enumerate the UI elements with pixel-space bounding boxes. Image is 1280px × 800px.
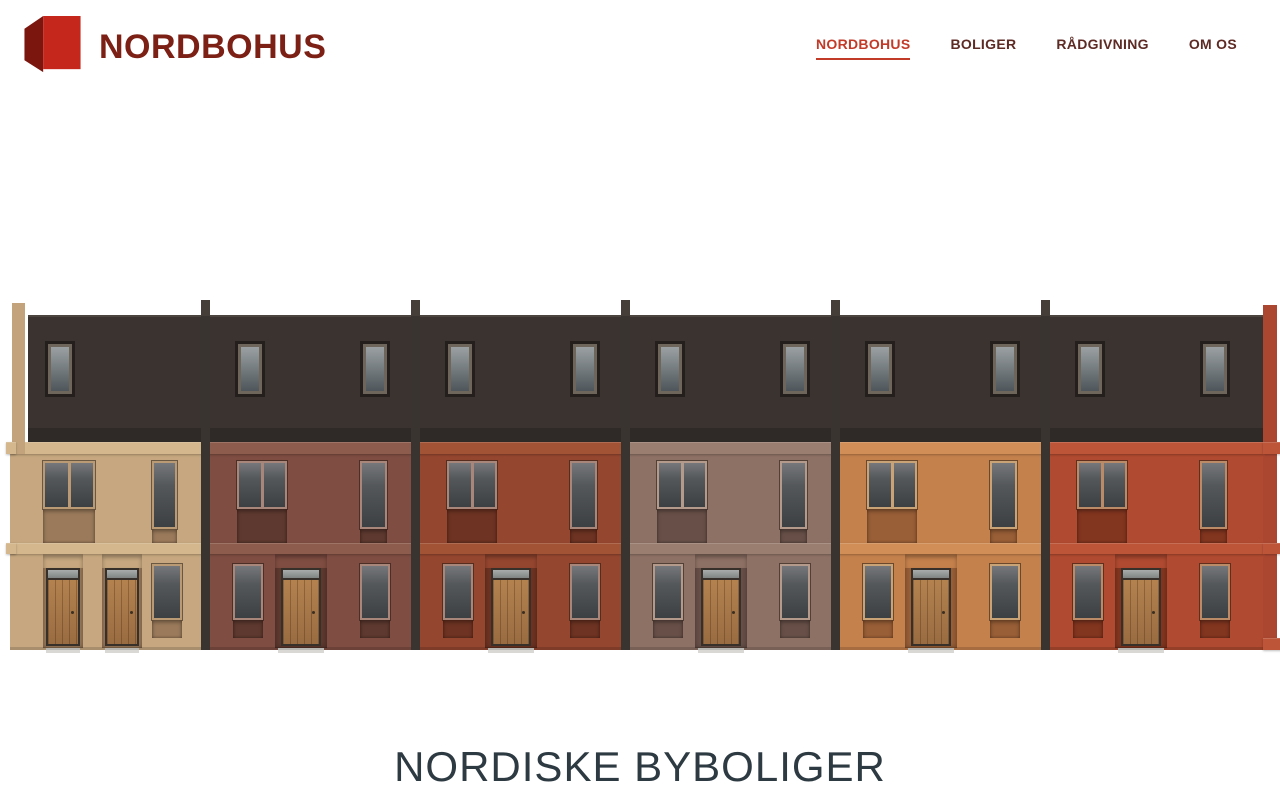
dormer-window (1075, 341, 1105, 397)
floor-band (10, 543, 205, 554)
dormer-glass (1081, 347, 1099, 391)
band-tab-left (6, 543, 16, 554)
band-tab-right (1263, 442, 1280, 454)
cornice-band (10, 442, 205, 454)
door-lintel (1115, 554, 1167, 568)
window-glass (869, 463, 891, 507)
spandrel-panel (360, 529, 387, 543)
door-frame (491, 568, 531, 646)
transom-window (283, 570, 319, 578)
spandrel-panel (990, 529, 1017, 543)
door-recess (1115, 554, 1167, 648)
ground-window (152, 564, 182, 620)
nav-item-om-os[interactable]: OM OS (1189, 36, 1237, 60)
door-recess (695, 554, 747, 648)
floor-band (625, 543, 835, 554)
front-door (913, 580, 949, 644)
upper-single-window (360, 461, 387, 529)
window-glass (1075, 566, 1101, 618)
dormer-frame (868, 344, 892, 394)
house-1-beige (10, 300, 205, 654)
site-header: NORDBOHUS NORDBOHUSBOLIGERRÅDGIVNINGOM O… (0, 0, 1280, 95)
party-wall-divider (831, 315, 840, 650)
roof-eave (28, 428, 205, 442)
spandrel-panel (570, 529, 597, 543)
roof-vent-post (201, 300, 210, 316)
roof-vent-post (1041, 300, 1050, 316)
upper-double-window (447, 461, 497, 509)
nav-item-nordbohus[interactable]: NORDBOHUS (816, 36, 910, 60)
door-recess (102, 554, 142, 648)
dormer-glass (576, 347, 594, 391)
dormer-window (865, 341, 895, 397)
cornice-band (415, 442, 625, 454)
dormer-frame (783, 344, 807, 394)
spandrel-panel (233, 620, 263, 638)
transom-window (493, 570, 529, 578)
dormer-frame (363, 344, 387, 394)
ground-window (1073, 564, 1103, 620)
window-glass (45, 463, 68, 507)
dormer-frame (658, 344, 682, 394)
band-tab-left (6, 442, 16, 454)
door-handle (312, 611, 315, 614)
window-glass (362, 566, 388, 618)
front-door (703, 580, 739, 644)
dormer-frame (1203, 344, 1227, 394)
roof-vent-post (621, 300, 630, 316)
dormer-window (570, 341, 600, 397)
townhouse-illustration (10, 300, 1277, 654)
dormer-window (45, 341, 75, 397)
nav-item-r-dgivning[interactable]: RÅDGIVNING (1056, 36, 1148, 60)
window-glass (1079, 463, 1101, 507)
dormer-glass (871, 347, 889, 391)
spandrel-panel (780, 620, 810, 638)
party-wall-divider (621, 315, 630, 650)
door-frame (1121, 568, 1161, 646)
dormer-window (780, 341, 810, 397)
door-handle (732, 611, 735, 614)
dormer-frame (993, 344, 1017, 394)
floor-band (205, 543, 415, 554)
nordbohus-logo-mark (24, 16, 82, 79)
house-3-red-brown (415, 300, 625, 654)
dormer-glass (366, 347, 384, 391)
window-glass (239, 463, 261, 507)
window-glass (1202, 463, 1225, 527)
cornice-band (835, 442, 1045, 454)
upper-single-window (570, 461, 597, 529)
ground-window (1200, 564, 1230, 620)
window-glass (71, 463, 94, 507)
spandrel-panel (780, 529, 807, 543)
dormer-glass (451, 347, 469, 391)
window-glass (1104, 463, 1126, 507)
roof-eave (1045, 428, 1263, 442)
spandrel-panel (447, 509, 497, 543)
upper-double-window (1077, 461, 1127, 509)
house-6-red (1045, 300, 1263, 654)
roof-eave (835, 428, 1045, 442)
door-recess (905, 554, 957, 648)
dormer-frame (448, 344, 472, 394)
roof-vent-post (831, 300, 840, 316)
spandrel-panel (152, 620, 182, 638)
door-handle (130, 611, 133, 614)
window-glass (782, 463, 805, 527)
window-glass (235, 566, 261, 618)
spandrel-panel (1077, 509, 1127, 543)
spandrel-panel (152, 529, 177, 543)
window-glass (362, 463, 385, 527)
dormer-glass (241, 347, 259, 391)
spandrel-panel (443, 620, 473, 638)
brand[interactable]: NORDBOHUS (24, 16, 326, 79)
transom-window (48, 570, 78, 578)
window-glass (992, 463, 1015, 527)
brand-title: NORDBOHUS (99, 28, 326, 67)
door-handle (522, 611, 525, 614)
ground-window (360, 564, 390, 620)
window-glass (782, 566, 808, 618)
ground-window (443, 564, 473, 620)
door-lintel (905, 554, 957, 568)
window-glass (154, 463, 175, 527)
transom-window (913, 570, 949, 578)
window-glass (865, 566, 891, 618)
cornice-band (1045, 442, 1263, 454)
window-glass (572, 566, 598, 618)
spandrel-panel (360, 620, 390, 638)
upper-double-window (867, 461, 917, 509)
window-glass (655, 566, 681, 618)
door-frame (105, 568, 139, 646)
window-glass (572, 463, 595, 527)
base-shadow (10, 647, 1263, 650)
ground-window (990, 564, 1020, 620)
party-wall-divider (201, 315, 210, 650)
spandrel-panel (43, 509, 95, 543)
dormer-window (990, 341, 1020, 397)
spandrel-panel (653, 620, 683, 638)
floor-band (1045, 543, 1263, 554)
spandrel-panel (237, 509, 287, 543)
door-frame (281, 568, 321, 646)
spandrel-panel (863, 620, 893, 638)
ground-window (570, 564, 600, 620)
roof-eave (625, 428, 835, 442)
door-lintel (695, 554, 747, 568)
party-wall-divider (411, 315, 420, 650)
dormer-frame (1078, 344, 1102, 394)
transom-window (1123, 570, 1159, 578)
door-frame (46, 568, 80, 646)
floor-band (835, 543, 1045, 554)
spandrel-panel (990, 620, 1020, 638)
ground-window (863, 564, 893, 620)
page-title: NORDISKE BYBOLIGER (0, 744, 1280, 790)
main-nav: NORDBOHUSBOLIGERRÅDGIVNINGOM OS (816, 36, 1237, 60)
window-glass (154, 566, 180, 618)
window-glass (684, 463, 706, 507)
roof-eave (205, 428, 415, 442)
door-handle (1152, 611, 1155, 614)
house-5-orange (835, 300, 1045, 654)
cornice-band (205, 442, 415, 454)
window-glass (474, 463, 496, 507)
left-chimney (12, 303, 25, 454)
transom-window (703, 570, 739, 578)
door-handle (942, 611, 945, 614)
ground-window (233, 564, 263, 620)
door-lintel (102, 554, 142, 568)
spandrel-panel (1200, 620, 1230, 638)
front-door (107, 580, 137, 644)
upper-single-window (1200, 461, 1227, 529)
dormer-glass (1206, 347, 1224, 391)
spandrel-panel (657, 509, 707, 543)
front-door (283, 580, 319, 644)
nav-item-boliger[interactable]: BOLIGER (950, 36, 1016, 60)
upper-single-window (152, 461, 177, 529)
roof-vent-post (411, 300, 420, 316)
upper-double-window (237, 461, 287, 509)
spandrel-panel (1073, 620, 1103, 638)
dormer-frame (573, 344, 597, 394)
door-lintel (275, 554, 327, 568)
cornice-band (625, 442, 835, 454)
band-tab-right (1263, 543, 1280, 554)
dormer-window (235, 341, 265, 397)
door-recess (43, 554, 83, 648)
dormer-glass (661, 347, 679, 391)
window-glass (1202, 566, 1228, 618)
dormer-glass (786, 347, 804, 391)
window-glass (449, 463, 471, 507)
dormer-window (1200, 341, 1230, 397)
upper-single-window (990, 461, 1017, 529)
upper-double-window (657, 461, 707, 509)
door-frame (911, 568, 951, 646)
right-chimney-column (1263, 305, 1277, 650)
door-frame (701, 568, 741, 646)
door-recess (485, 554, 537, 648)
dormer-glass (996, 347, 1014, 391)
door-lintel (485, 554, 537, 568)
front-door (493, 580, 529, 644)
floor-band (415, 543, 625, 554)
party-wall-divider (1041, 315, 1050, 650)
dormer-frame (238, 344, 262, 394)
dormer-window (655, 341, 685, 397)
window-glass (264, 463, 286, 507)
spandrel-panel (1200, 529, 1227, 543)
window-glass (659, 463, 681, 507)
front-door (48, 580, 78, 644)
window-glass (445, 566, 471, 618)
window-glass (992, 566, 1018, 618)
ground-window (653, 564, 683, 620)
door-lintel (43, 554, 83, 568)
upper-single-window (780, 461, 807, 529)
house-4-mauve (625, 300, 835, 654)
ground-window (780, 564, 810, 620)
spandrel-panel (570, 620, 600, 638)
dormer-window (445, 341, 475, 397)
dormer-window (360, 341, 390, 397)
transom-window (107, 570, 137, 578)
band-tab-right (1263, 638, 1280, 650)
front-door (1123, 580, 1159, 644)
house-2-brown (205, 300, 415, 654)
spandrel-panel (867, 509, 917, 543)
upper-double-window (43, 461, 95, 509)
window-glass (894, 463, 916, 507)
door-recess (275, 554, 327, 648)
door-handle (71, 611, 74, 614)
dormer-frame (48, 344, 72, 394)
dormer-glass (51, 347, 69, 391)
roof-eave (415, 428, 625, 442)
